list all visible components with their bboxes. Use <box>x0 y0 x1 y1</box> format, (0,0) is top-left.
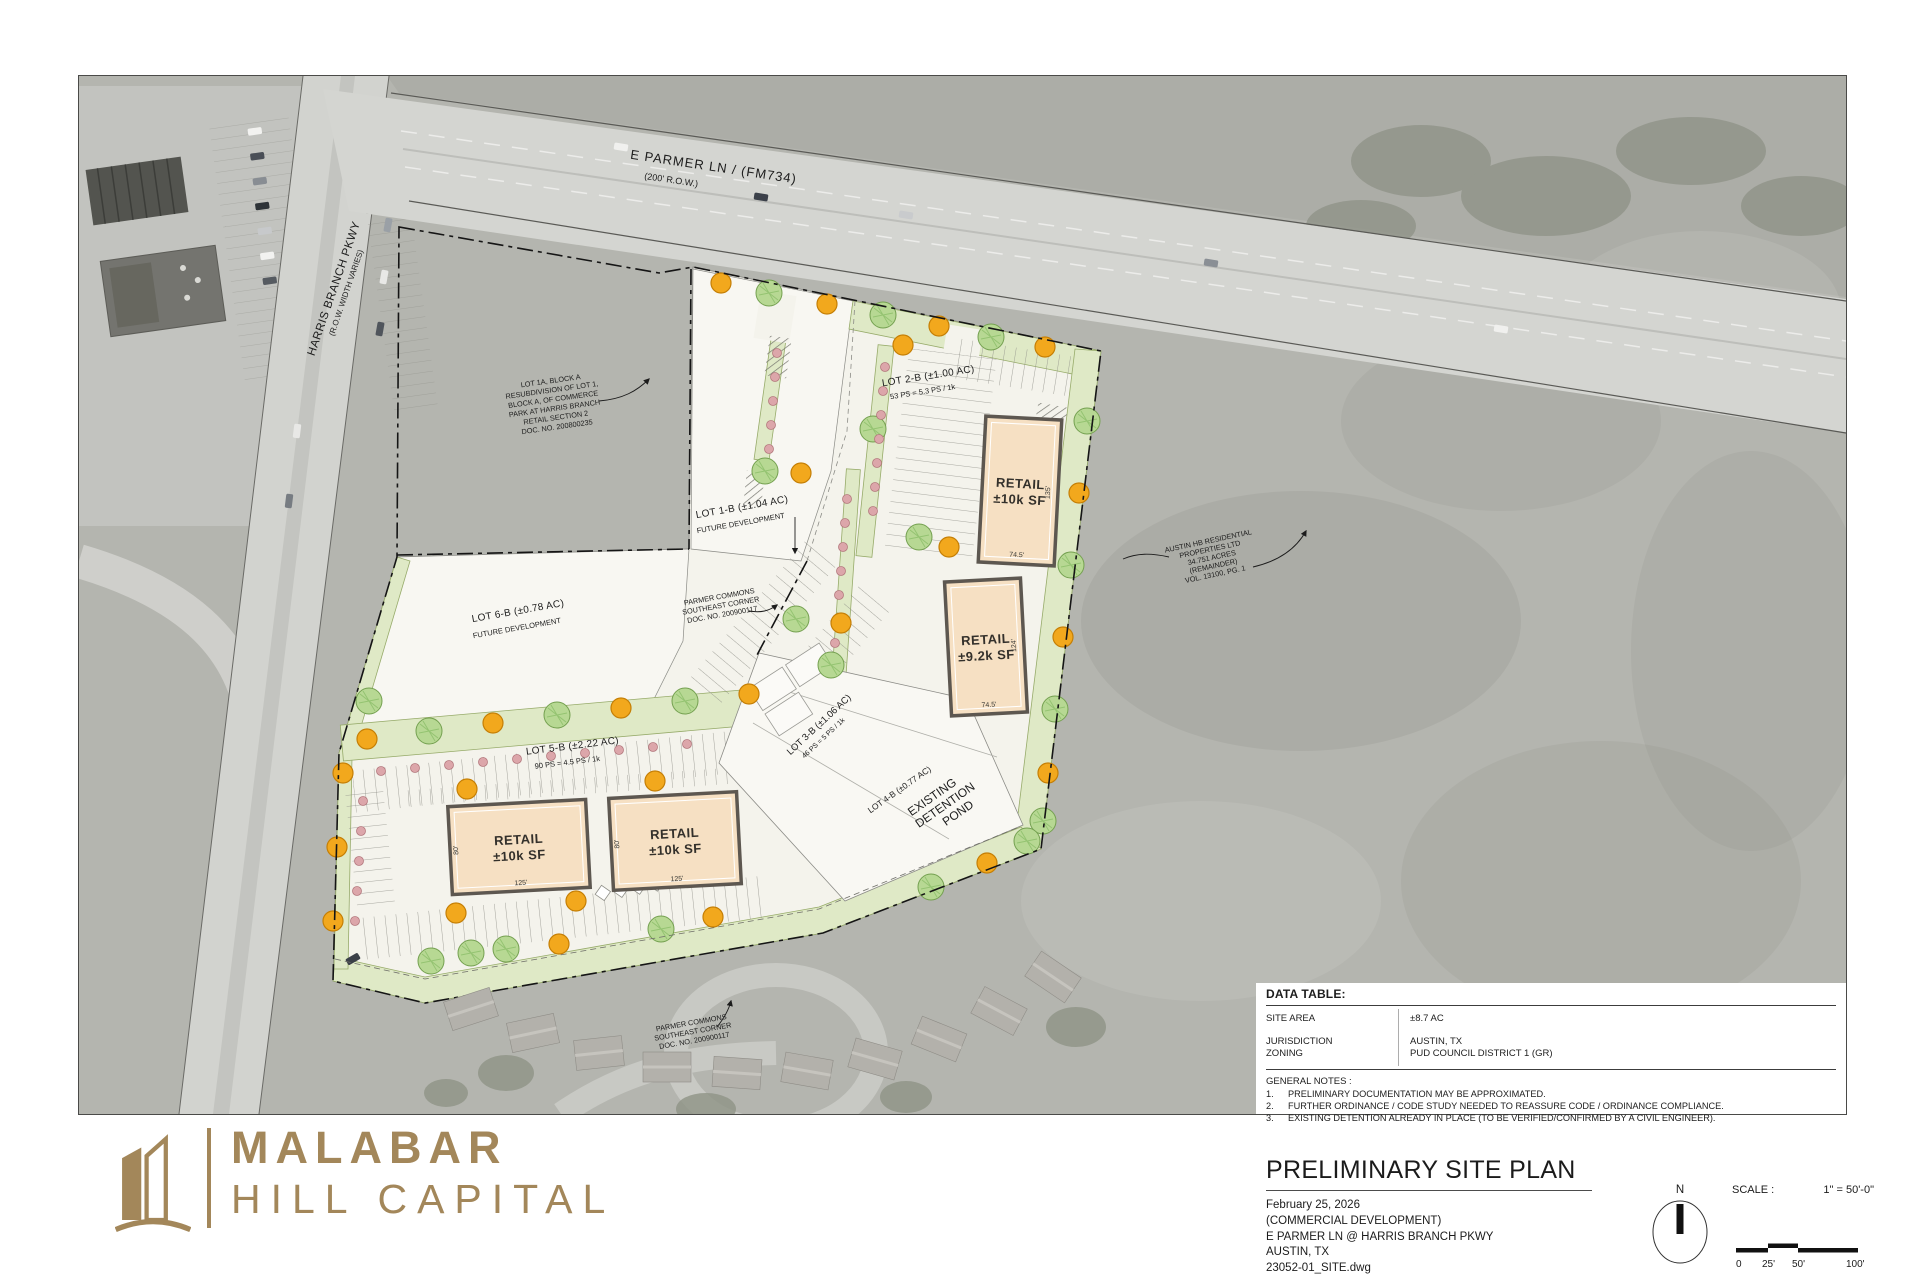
data-table-title: DATA TABLE: <box>1266 987 1836 1006</box>
general-note: 1. PRELIMINARY DOCUMENTATION MAY BE APPR… <box>1266 1090 1836 1100</box>
row-label: JURISDICTION <box>1266 1036 1398 1048</box>
logo-line2: HILL CAPITAL <box>231 1177 615 1222</box>
logo-divider <box>207 1128 211 1228</box>
dim-bottom: 125' <box>670 876 683 884</box>
dim-side: 80' <box>614 839 621 848</box>
row-value: ±8.7 AC <box>1398 1013 1444 1025</box>
note-number: 3. <box>1266 1114 1288 1124</box>
logo-line1: MALABAR <box>231 1124 615 1173</box>
company-logo: MALABAR HILL CAPITAL <box>115 1124 615 1236</box>
building-label: RETAIL <box>650 825 700 843</box>
building-label: RETAIL <box>961 631 1011 649</box>
dim-bottom: 125' <box>514 880 527 888</box>
row-label: SITE AREA <box>1266 1013 1398 1025</box>
building-size: ±10k SF <box>493 847 546 865</box>
note-text: FURTHER ORDINANCE / CODE STUDY NEEDED TO… <box>1288 1102 1724 1112</box>
scale-bar: 0 25' 50' 100' <box>1732 1236 1874 1276</box>
general-note: 2. FURTHER ORDINANCE / CODE STUDY NEEDED… <box>1266 1102 1836 1112</box>
building-label: RETAIL <box>996 475 1046 493</box>
scale-block: SCALE : 1" = 50'-0" 0 25' 50' 100' <box>1732 1184 1874 1279</box>
general-notes-title: GENERAL NOTES : <box>1266 1076 1836 1087</box>
note-text: PRELIMINARY DOCUMENTATION MAY BE APPROXI… <box>1288 1090 1546 1100</box>
note-text: EXISTING DETENTION ALREADY IN PLACE (TO … <box>1288 1114 1715 1124</box>
dim-bottom: 74.5' <box>981 702 996 710</box>
retail-building-3: RETAIL ±10k SF 80' 125' <box>448 799 590 894</box>
building-size: ±10k SF <box>993 491 1046 509</box>
building-label: RETAIL <box>494 831 544 849</box>
building-size: ±10k SF <box>649 841 702 859</box>
general-note: 3. EXISTING DETENTION ALREADY IN PLACE (… <box>1266 1114 1836 1124</box>
sheet-title: PRELIMINARY SITE PLAN <box>1266 1156 1846 1185</box>
scale-tick: 25' <box>1762 1259 1775 1270</box>
dim-side: 135' <box>1045 486 1053 499</box>
site-plan-map: RETAIL ±10k SF 135' 74.5' RETAIL ±9.2k S… <box>78 75 1847 1115</box>
row-value: PUD COUNCIL DISTRICT 1 (GR) <box>1398 1048 1553 1060</box>
data-table-body: SITE AREA ±8.7 AC JURISDICTION AUSTIN, T… <box>1266 1006 1836 1069</box>
scale-value: 1" = 50'-0" <box>1823 1184 1874 1196</box>
dim-side: 124' <box>1011 639 1019 652</box>
building-size: ±9.2k SF <box>958 647 1015 665</box>
retail-building-1: RETAIL ±10k SF 135' 74.5' <box>978 416 1062 566</box>
north-label: N <box>1676 1184 1684 1196</box>
scale-label: SCALE : <box>1732 1184 1774 1196</box>
table-row: SITE AREA ±8.7 AC <box>1266 1013 1836 1025</box>
retail-building-4: RETAIL ±10k SF 80' 125' <box>609 792 742 891</box>
commercial-building <box>100 245 225 336</box>
table-row: ZONING PUD COUNCIL DISTRICT 1 (GR) <box>1266 1048 1836 1060</box>
divider <box>1266 1190 1592 1191</box>
scale-tick: 0 <box>1736 1259 1742 1270</box>
scale-tick: 100' <box>1846 1259 1865 1270</box>
note-number: 2. <box>1266 1102 1288 1112</box>
north-arrow-icon: N <box>1645 1180 1715 1275</box>
site-plan-sheet: RETAIL ±10k SF 135' 74.5' RETAIL ±9.2k S… <box>0 0 1920 1280</box>
data-table-panel: DATA TABLE: SITE AREA ±8.7 AC JURISDICTI… <box>1256 983 1846 1114</box>
retail-building-2: RETAIL ±9.2k SF 124' 74.5' <box>945 578 1028 716</box>
table-row: JURISDICTION AUSTIN, TX <box>1266 1036 1836 1048</box>
dim-bottom: 74.5' <box>1009 552 1024 560</box>
note-number: 1. <box>1266 1090 1288 1100</box>
dim-side: 80' <box>453 846 460 855</box>
site-plan-drawing: RETAIL ±10k SF 135' 74.5' RETAIL ±9.2k S… <box>79 76 1846 1114</box>
divider <box>1266 1069 1836 1070</box>
scale-tick: 50' <box>1792 1259 1805 1270</box>
row-value: AUSTIN, TX <box>1398 1036 1462 1048</box>
buildings-icon <box>115 1124 191 1236</box>
row-label: ZONING <box>1266 1048 1398 1060</box>
